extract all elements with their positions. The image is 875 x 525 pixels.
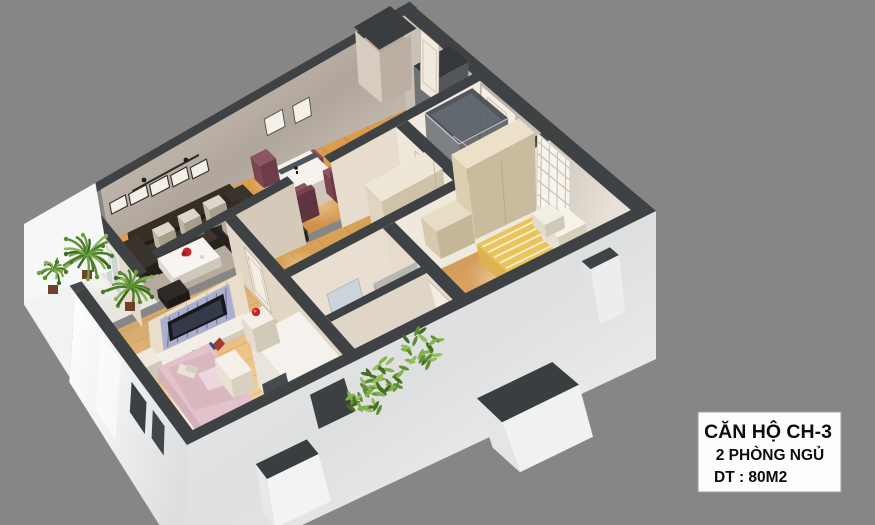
svg-text:2 PHÒNG NGỦ: 2 PHÒNG NGỦ (716, 446, 825, 464)
svg-text:DT : 80M2: DT : 80M2 (714, 469, 787, 486)
svg-text:CĂN HỘ CH-3: CĂN HỘ CH-3 (704, 419, 832, 443)
